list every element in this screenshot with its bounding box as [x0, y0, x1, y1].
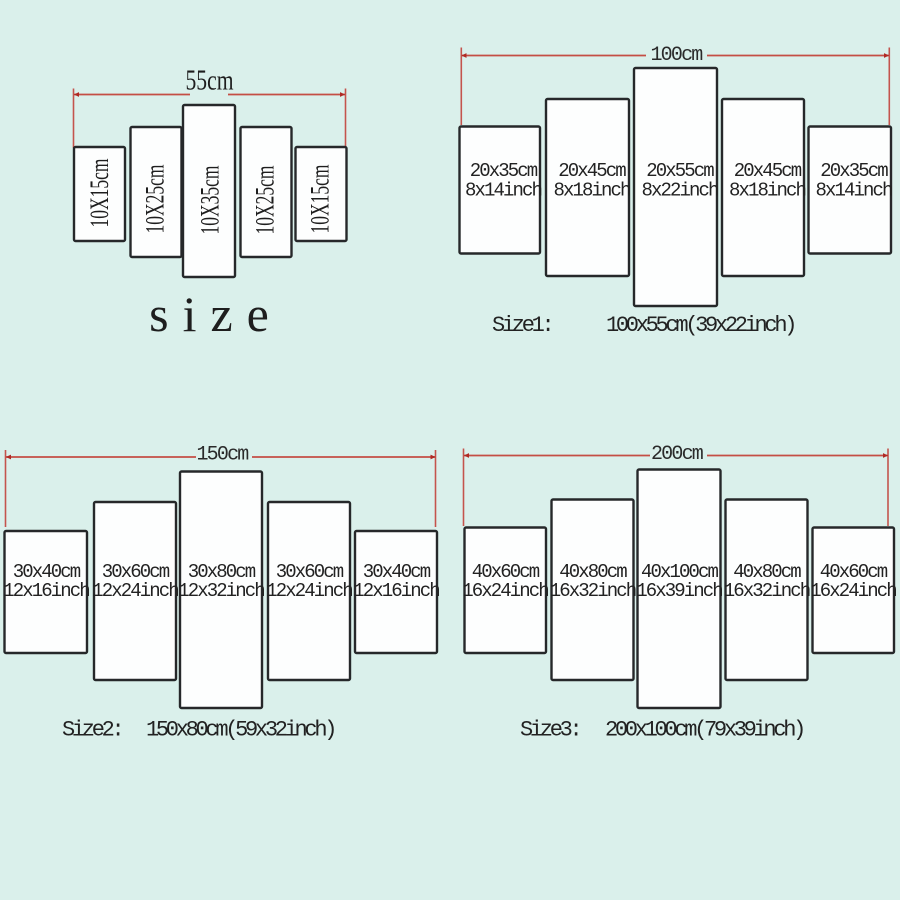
svg-text:8x14inch: 8x14inch	[815, 180, 892, 202]
svg-text:10X25cm: 10X25cm	[141, 165, 170, 234]
svg-text:10X25cm: 10X25cm	[251, 166, 280, 235]
svg-text:10X15cm: 10X15cm	[306, 165, 335, 234]
svg-text:12x24inch: 12x24inch	[266, 580, 352, 602]
svg-text:8x18inch: 8x18inch	[729, 180, 806, 202]
svg-text:12x16inch: 12x16inch	[3, 580, 89, 602]
svg-text:12x32inch: 12x32inch	[178, 580, 264, 602]
svg-text:200x100cm(79x39inch): 200x100cm(79x39inch)	[605, 718, 803, 743]
svg-text:Size3:: Size3:	[520, 718, 579, 743]
svg-text:100cm: 100cm	[650, 44, 702, 67]
svg-text:150cm: 150cm	[196, 444, 248, 467]
svg-text:10X15cm: 10X15cm	[85, 159, 114, 228]
svg-text:150x80cm(59x32inch): 150x80cm(59x32inch)	[146, 718, 334, 743]
svg-text:Size2:: Size2:	[62, 718, 121, 743]
svg-text:12x16inch: 12x16inch	[353, 580, 439, 602]
svg-text:16x24inch: 16x24inch	[462, 580, 548, 602]
svg-text:8x22inch: 8x22inch	[641, 180, 718, 202]
svg-text:16x32inch: 16x32inch	[550, 580, 636, 602]
svg-text:8x18inch: 8x18inch	[553, 180, 630, 202]
svg-text:100x55cm(39x22inch): 100x55cm(39x22inch)	[606, 313, 794, 338]
svg-text:size: size	[149, 286, 283, 342]
svg-text:55cm: 55cm	[186, 65, 234, 97]
svg-text:16x39inch: 16x39inch	[636, 580, 722, 602]
svg-text:8x14inch: 8x14inch	[465, 180, 542, 202]
svg-text:16x32inch: 16x32inch	[724, 580, 810, 602]
svg-text:Size1:: Size1:	[492, 313, 551, 338]
svg-text:200cm: 200cm	[651, 443, 703, 466]
svg-text:10X35cm: 10X35cm	[196, 166, 225, 235]
svg-text:16x24inch: 16x24inch	[810, 580, 896, 602]
svg-text:12x24inch: 12x24inch	[92, 580, 178, 602]
